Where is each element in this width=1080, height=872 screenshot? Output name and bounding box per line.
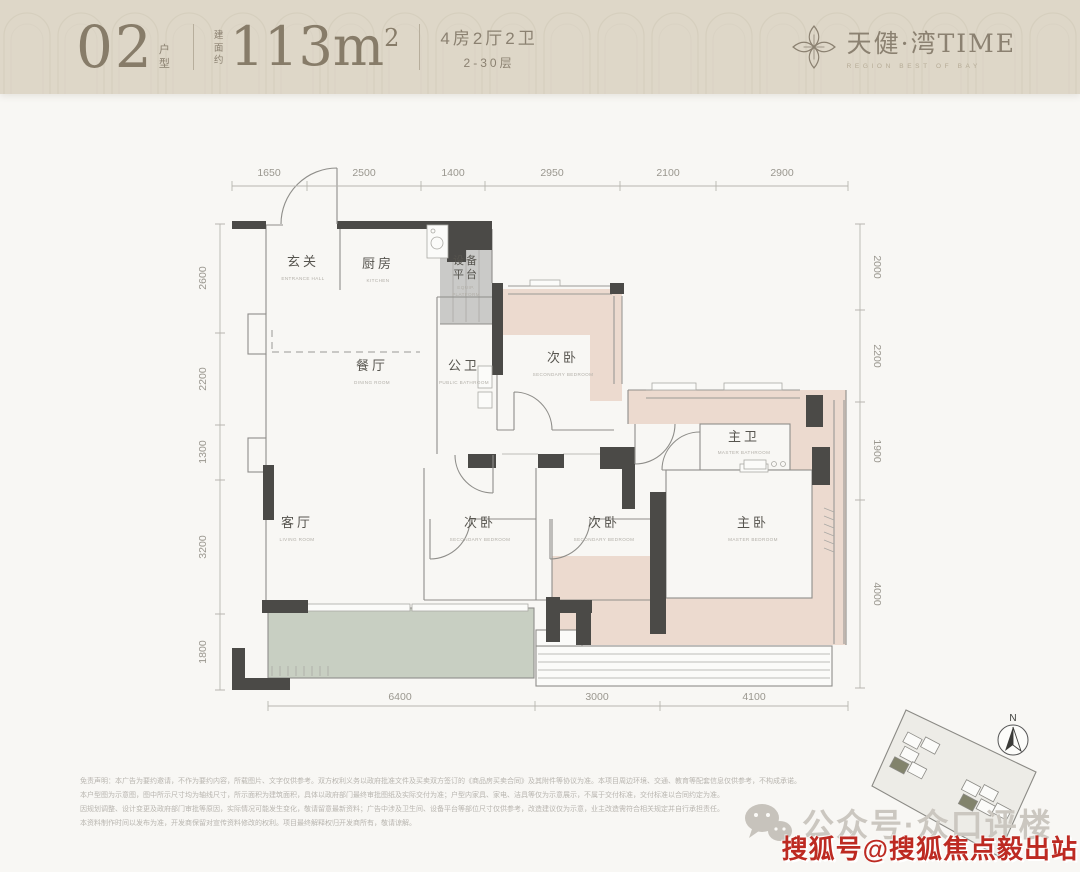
room-label-master-bath: 主卫 (728, 429, 760, 444)
svg-text:MASTER BATHROOM: MASTER BATHROOM (718, 450, 771, 455)
svg-text:6400: 6400 (388, 691, 412, 703)
svg-text:ENTRANCE HALL: ENTRANCE HALL (281, 276, 324, 281)
svg-text:PUBLIC BATHROOM: PUBLIC BATHROOM (439, 380, 489, 385)
svg-text:2600: 2600 (197, 266, 209, 290)
svg-text:1400: 1400 (441, 167, 465, 179)
svg-text:平台: 平台 (453, 267, 479, 281)
room-label-entrance: 玄关 (287, 254, 319, 269)
svg-text:1300: 1300 (197, 440, 209, 464)
room-label-bedroom-1: 次卧 (547, 350, 579, 365)
svg-text:4000: 4000 (871, 582, 883, 606)
svg-text:1900: 1900 (871, 439, 883, 463)
room-label-equip: 设备 (453, 253, 479, 267)
svg-text:2500: 2500 (352, 167, 376, 179)
svg-text:MASTER BEDROOM: MASTER BEDROOM (728, 537, 778, 542)
svg-text:SECONDARY BEDROOM: SECONDARY BEDROOM (533, 372, 594, 377)
compass-icon: N (998, 713, 1028, 755)
room-label-kitchen: 厨房 (362, 256, 394, 271)
room-label-bedroom-3: 次卧 (588, 515, 620, 530)
dim-chain-left: 2600 2200 1300 3200 1800 (197, 224, 225, 690)
floors-range: 2-30层 (440, 54, 537, 71)
sohu-watermark: 搜狐号@搜狐焦点毅出站 (782, 829, 1078, 866)
room-label-living: 客厅 (281, 515, 313, 530)
svg-text:LIVING ROOM: LIVING ROOM (279, 537, 314, 542)
area-value: 113m2 (230, 20, 400, 74)
svg-text:KITCHEN: KITCHEN (367, 278, 390, 283)
disclaimer-text: 免责声明：本广告为要约邀请，不作为要约内容，所载图片、文字仅供参考。双方权利义务… (80, 775, 828, 831)
floor-plan: 玄关 ENTRANCE HALL 厨房 KITCHEN 设备 平台 EQUIP.… (0, 0, 1080, 872)
flower-logo-icon (791, 24, 837, 70)
svg-text:1800: 1800 (197, 640, 209, 664)
svg-text:SECONDARY BEDROOM: SECONDARY BEDROOM (574, 537, 635, 542)
unit-spec: 4房2厅2卫 2-30层 (440, 24, 537, 71)
header-banner: 02 户型 建面约 113m2 4房2厅2卫 2-30层 (0, 0, 1080, 94)
compass-north-label: N (1009, 713, 1016, 724)
area-prefix: 建面约 (214, 30, 226, 67)
svg-text:4100: 4100 (742, 691, 766, 703)
room-label-master-bedroom: 主卧 (737, 515, 769, 530)
svg-text:2200: 2200 (871, 344, 883, 368)
room-label-dining: 餐厅 (356, 358, 388, 373)
svg-text:SECONDARY BEDROOM: SECONDARY BEDROOM (450, 537, 511, 542)
unit-number: 02 (76, 18, 154, 76)
divider (419, 24, 420, 70)
svg-text:DINING ROOM: DINING ROOM (354, 380, 390, 385)
dim-chain-right: 2000 2200 1900 4000 (855, 224, 883, 688)
unit-suffix: 户型 (159, 44, 173, 72)
svg-text:2100: 2100 (656, 167, 680, 179)
svg-text:2950: 2950 (540, 167, 564, 179)
svg-text:3200: 3200 (197, 535, 209, 559)
divider (193, 24, 194, 70)
svg-text:2900: 2900 (770, 167, 794, 179)
svg-text:3000: 3000 (585, 691, 609, 703)
brand-logo: 天健·湾TIME REGION BEST OF BAY (791, 24, 1016, 70)
room-label-public-bath: 公卫 (448, 358, 480, 373)
dim-chain-bottom: 6400 3000 4100 (268, 691, 848, 711)
brand-tagline: REGION BEST OF BAY (847, 63, 1016, 70)
room-label-bedroom-2: 次卧 (464, 515, 496, 530)
svg-text:PLATFORM: PLATFORM (452, 292, 480, 297)
brand-name: 天健·湾TIME (847, 24, 1016, 60)
dim-chain-top: 1650 2500 1400 2950 2100 2900 (232, 167, 848, 191)
svg-text:2000: 2000 (871, 255, 883, 279)
dashed-boundary (272, 330, 420, 352)
floorplan-advert-page: 02 户型 建面约 113m2 4房2厅2卫 2-30层 (0, 0, 1080, 872)
svg-text:2200: 2200 (197, 367, 209, 391)
svg-text:1650: 1650 (257, 167, 281, 179)
svg-text:EQUIP.: EQUIP. (457, 285, 474, 290)
rooms-spec: 4房2厅2卫 (440, 24, 537, 49)
